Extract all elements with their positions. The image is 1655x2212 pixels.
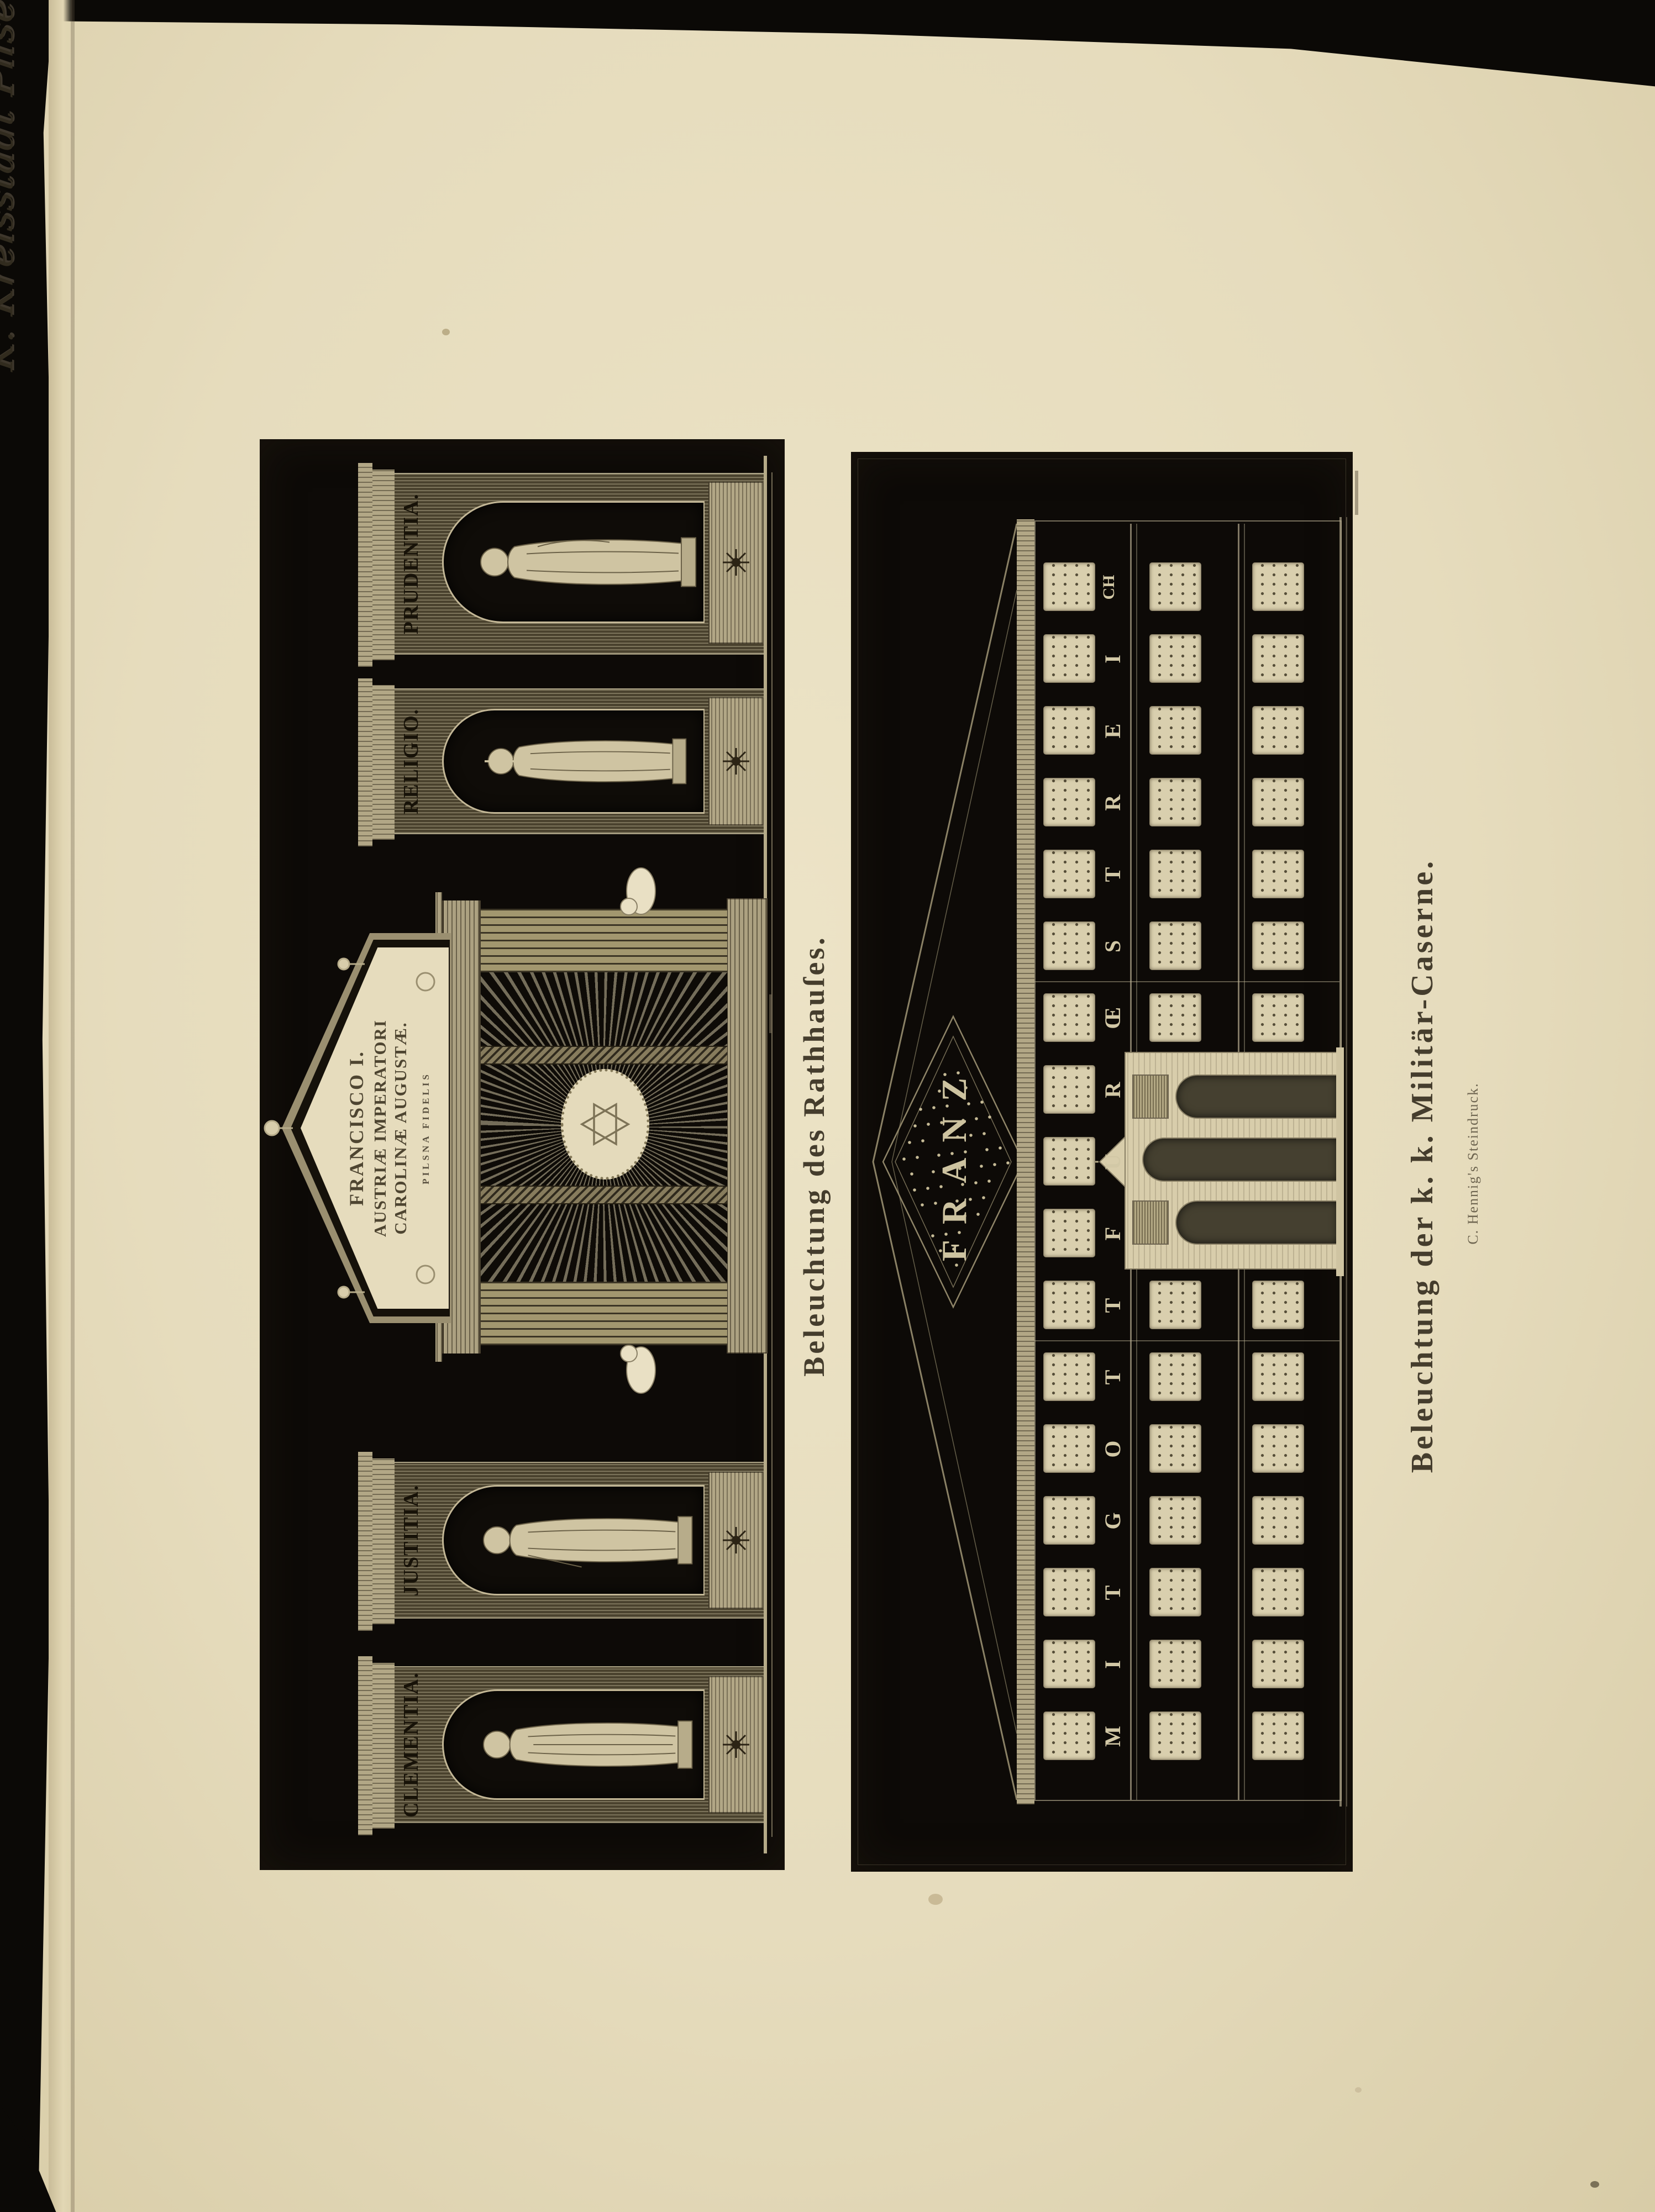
lit-window bbox=[1149, 921, 1201, 970]
page-top-shadow bbox=[0, 0, 1655, 94]
caption-rathhaus: Beleuchtung des Rathhauſes. bbox=[797, 885, 831, 1426]
niche-label: PRUDENTIA. bbox=[399, 474, 423, 654]
statue-niche bbox=[442, 709, 705, 814]
lit-window bbox=[1149, 1496, 1201, 1545]
lit-window bbox=[1043, 921, 1095, 970]
motto-letter: S bbox=[1100, 910, 1126, 982]
motto-letter: Œ bbox=[1100, 982, 1126, 1054]
ornament-panel bbox=[1132, 1200, 1169, 1245]
statue-niche bbox=[442, 501, 705, 623]
lit-window bbox=[1252, 562, 1304, 611]
lit-window bbox=[1252, 993, 1304, 1042]
lit-window bbox=[1252, 850, 1304, 898]
caption-caserne: Beleuchtung der k. k. Militär-Caserne. bbox=[1405, 801, 1440, 1530]
lit-window bbox=[1043, 850, 1095, 898]
motto-letter: T bbox=[1100, 1557, 1126, 1629]
motto-letter: CH bbox=[1100, 551, 1126, 623]
ornament-panel bbox=[1132, 1075, 1169, 1119]
lit-window bbox=[1149, 634, 1201, 683]
paper-speckle bbox=[1590, 2181, 1599, 2188]
motto-letter: I bbox=[1100, 1629, 1126, 1700]
lit-window bbox=[1043, 1568, 1095, 1616]
lit-window bbox=[1043, 1424, 1095, 1473]
motto-letter: G bbox=[1100, 1485, 1126, 1557]
rosette-icon bbox=[719, 546, 753, 580]
lit-window bbox=[1149, 1424, 1201, 1473]
lit-window bbox=[1149, 1640, 1201, 1688]
pedestal bbox=[708, 697, 764, 825]
lithographer-imprint: C. Hennig's Steindruck. bbox=[1465, 1053, 1481, 1274]
lit-window bbox=[1252, 1424, 1304, 1473]
lit-window bbox=[1043, 1640, 1095, 1688]
statue-figure bbox=[444, 710, 703, 812]
rosette-icon bbox=[719, 745, 753, 778]
niche-label: RELIGIO. bbox=[399, 689, 423, 833]
scanned-book-page: { "page": { "handwritten_note": "K. Krei… bbox=[0, 0, 1655, 2212]
lit-window bbox=[1149, 993, 1201, 1042]
lit-window bbox=[1043, 1352, 1095, 1401]
lit-window bbox=[1149, 706, 1201, 755]
entrance-pavilion bbox=[1125, 1052, 1339, 1270]
lit-window bbox=[1043, 993, 1095, 1042]
lit-window bbox=[1043, 562, 1095, 611]
lit-window bbox=[1252, 778, 1304, 826]
lit-window bbox=[1043, 1137, 1095, 1186]
pylon-body: PRUDENTIA. bbox=[395, 473, 764, 655]
lit-window bbox=[1043, 1209, 1095, 1257]
motto-letter: T bbox=[1100, 1270, 1126, 1341]
arch-doorway bbox=[1142, 1137, 1339, 1182]
arch-doorway bbox=[1175, 1075, 1339, 1119]
lit-window bbox=[1149, 1281, 1201, 1329]
lit-window bbox=[1043, 1281, 1095, 1329]
lit-window bbox=[1149, 1352, 1201, 1401]
motto-letter: E bbox=[1100, 695, 1126, 767]
motto-letter: I bbox=[1100, 623, 1126, 695]
lit-window bbox=[1252, 706, 1304, 755]
motto-letter: M bbox=[1100, 1700, 1126, 1772]
lit-window bbox=[1252, 1568, 1304, 1616]
lit-window bbox=[1149, 778, 1201, 826]
pedestal bbox=[708, 482, 764, 644]
motto-letter: R bbox=[1100, 1054, 1126, 1126]
lit-window bbox=[1043, 706, 1095, 755]
gutter-crease bbox=[71, 0, 75, 2212]
lit-window bbox=[1043, 1711, 1095, 1760]
putto-sculpture bbox=[621, 868, 655, 1393]
roof-title: FRANZ bbox=[934, 996, 975, 1328]
pylon-cornice bbox=[358, 463, 372, 667]
lit-window bbox=[1149, 850, 1201, 898]
lit-window bbox=[1149, 1711, 1201, 1760]
lit-window bbox=[1252, 1352, 1304, 1401]
handwritten-note: K. Kreisstadt Pilsen, am 2. August. bbox=[0, 0, 22, 373]
lit-window bbox=[1043, 634, 1095, 683]
pavilion-step bbox=[1336, 1047, 1344, 1276]
motto-letter: U bbox=[1100, 1126, 1126, 1198]
motto-letter: T bbox=[1100, 1341, 1126, 1413]
lit-window bbox=[1252, 1640, 1304, 1688]
rathhaus-scene: CLEMENTIA. bbox=[260, 439, 785, 1870]
plate-rathhaus: CLEMENTIA. bbox=[260, 439, 785, 1870]
arch-doorway bbox=[1175, 1200, 1339, 1245]
motto-letter: F bbox=[1100, 1198, 1126, 1270]
lit-window bbox=[1043, 778, 1095, 826]
paper-speckle bbox=[442, 329, 450, 335]
page-edge-highlight bbox=[49, 0, 73, 2212]
lit-window bbox=[1252, 1281, 1304, 1329]
lit-window bbox=[1149, 562, 1201, 611]
pylon-cornice bbox=[358, 678, 372, 846]
statue-figure bbox=[444, 503, 703, 622]
lit-window bbox=[1252, 634, 1304, 683]
lit-window bbox=[1043, 1065, 1095, 1114]
lit-window bbox=[1149, 1568, 1201, 1616]
pylon-cornice bbox=[372, 685, 395, 840]
motto-letter: R bbox=[1100, 767, 1126, 839]
lit-window bbox=[1252, 1711, 1304, 1760]
plate-caserne: FRANZ MITGOTTFURŒSTREICH bbox=[851, 452, 1353, 1872]
illegible-imprint bbox=[769, 994, 773, 1033]
lit-window bbox=[1043, 1496, 1095, 1545]
motto-letter: O bbox=[1100, 1413, 1126, 1485]
lit-window bbox=[1252, 921, 1304, 970]
motto-letter: T bbox=[1100, 839, 1126, 910]
lit-window bbox=[1252, 1496, 1304, 1545]
pylon-body: RELIGIO. bbox=[395, 688, 764, 834]
caserne-scene: FRANZ MITGOTTFURŒSTREICH bbox=[851, 452, 1353, 1872]
illegible-imprint bbox=[1355, 471, 1358, 515]
paper-speckle bbox=[1355, 2087, 1362, 2093]
paper-speckle bbox=[928, 1894, 943, 1905]
pylon-cornice bbox=[372, 470, 395, 660]
